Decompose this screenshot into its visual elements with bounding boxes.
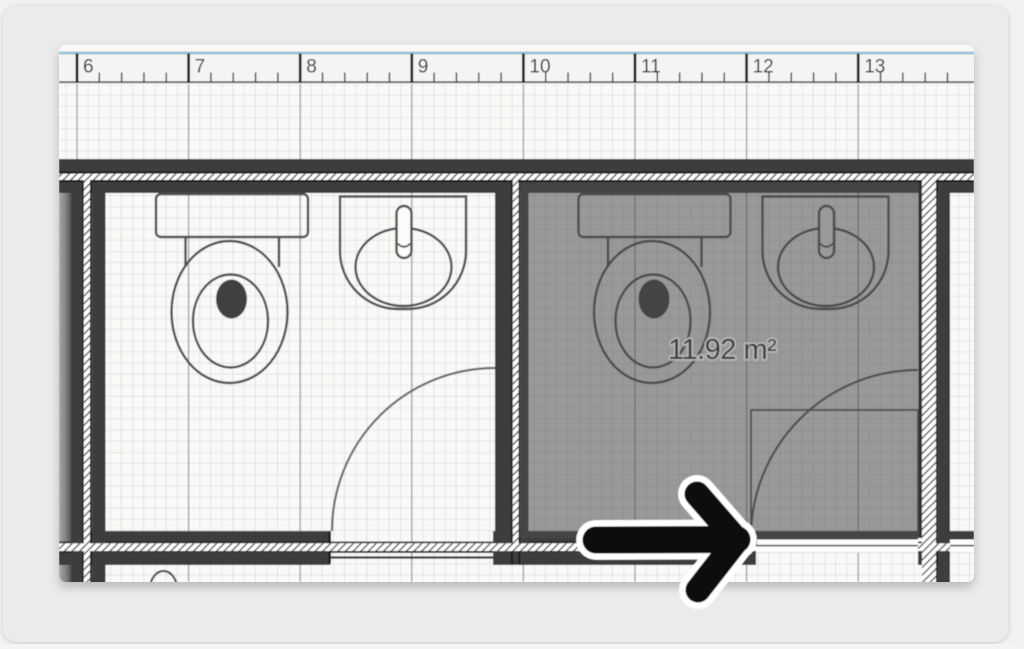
svg-text:10: 10 [529,57,550,78]
svg-text:7: 7 [195,57,206,78]
svg-text:8: 8 [306,57,317,78]
svg-text:6: 6 [83,57,94,78]
svg-text:11: 11 [641,57,661,78]
svg-text:13: 13 [864,57,885,78]
svg-text:12: 12 [753,57,774,78]
svg-text:9: 9 [418,57,429,78]
svg-text:11.92 m²: 11.92 m² [668,334,777,366]
